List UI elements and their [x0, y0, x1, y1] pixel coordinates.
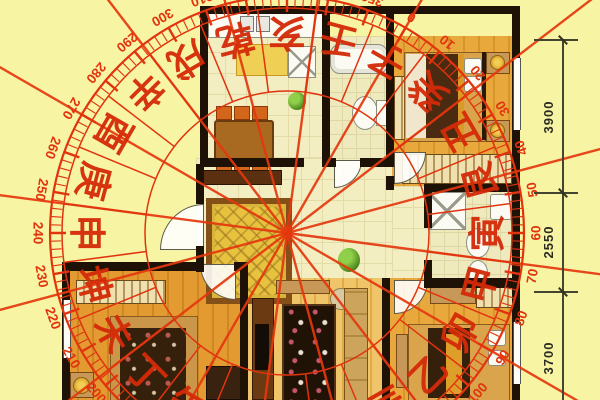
dimension-label: 3700 — [541, 330, 557, 386]
dining-chair — [234, 106, 250, 120]
tv — [255, 324, 269, 370]
bed-blanket — [426, 54, 458, 138]
table-lamp — [490, 55, 505, 70]
wall — [360, 158, 394, 167]
degree-tick — [96, 94, 104, 100]
wall — [196, 164, 204, 204]
dimension-tick — [534, 39, 578, 41]
degree-tick — [58, 176, 68, 178]
sofa — [344, 288, 368, 400]
degree-tick — [148, 42, 154, 50]
bed-throw — [446, 334, 462, 394]
window — [513, 58, 521, 130]
degree-tick — [155, 37, 161, 45]
degree-label: 270 — [59, 95, 83, 122]
degree-tick — [134, 51, 145, 64]
degree-tick — [129, 58, 136, 65]
table-lamp — [490, 123, 505, 138]
degree-tick — [53, 192, 70, 195]
console-table — [276, 280, 330, 294]
degree-label: 240 — [31, 222, 46, 245]
sector-divider — [64, 204, 146, 215]
wall — [200, 6, 518, 14]
degree-label: 230 — [32, 264, 51, 289]
wall — [424, 186, 432, 228]
dining-chair — [252, 106, 268, 120]
degree-tick — [101, 88, 109, 94]
dimension-tick — [534, 192, 578, 194]
kitchen-island — [236, 44, 288, 76]
degree-tick — [81, 114, 96, 123]
pillow — [488, 330, 506, 346]
bench — [396, 334, 408, 388]
console-shelf — [196, 170, 282, 185]
degree-tick — [184, 21, 188, 30]
degree-tick — [142, 47, 148, 55]
degree-tick — [117, 69, 124, 76]
degree-label: 300 — [149, 5, 176, 29]
toilet — [352, 96, 378, 130]
degree-tick — [162, 33, 167, 41]
degree-tick — [191, 17, 195, 26]
wall — [382, 278, 390, 400]
mountain-character: 酉 — [85, 106, 142, 160]
wall — [386, 14, 394, 158]
wall — [426, 278, 516, 286]
dining-chair — [216, 106, 232, 120]
wardrobe — [76, 280, 166, 304]
degree-label: 260 — [42, 135, 64, 161]
degree-label: 250 — [32, 177, 51, 202]
degree-tick — [87, 108, 95, 113]
window — [513, 322, 521, 384]
wall — [200, 6, 208, 166]
sector-divider — [79, 147, 156, 179]
degree-tick — [105, 80, 118, 91]
living-rug — [282, 304, 336, 400]
dimension-label: 3900 — [541, 89, 557, 145]
wall — [62, 262, 200, 271]
mountain-character: 申 — [65, 215, 109, 252]
stove-burner — [240, 16, 254, 32]
degree-label: 290 — [113, 29, 140, 55]
dimension-tick — [534, 291, 578, 293]
degree-label: 70 — [524, 268, 541, 285]
kitchen-sink — [288, 46, 316, 78]
wall — [322, 14, 330, 164]
toilet — [466, 228, 490, 258]
degree-tick — [68, 145, 77, 149]
stove-burner — [256, 16, 270, 32]
mountain-character: 辛 — [117, 63, 174, 120]
pillow — [488, 350, 506, 366]
degree-tick — [372, 14, 376, 23]
sector-divider — [150, 54, 201, 120]
degree-label: 220 — [42, 305, 64, 331]
degree-tick — [52, 208, 62, 209]
degree-tick — [53, 200, 63, 201]
degree-tick — [176, 25, 181, 34]
pillow — [464, 76, 482, 92]
wall — [424, 184, 520, 192]
washing-machine — [490, 194, 512, 220]
bed-sheet — [406, 54, 426, 138]
wall — [322, 158, 336, 167]
degree-tick — [52, 217, 62, 218]
window — [63, 300, 71, 358]
degree-tick — [63, 160, 73, 163]
degree-tick — [112, 75, 119, 82]
wall — [386, 176, 394, 190]
bed-blanket — [120, 328, 186, 400]
sector-divider — [108, 96, 174, 147]
dresser — [206, 366, 242, 400]
degree-tick — [56, 184, 66, 186]
pillow — [464, 58, 482, 74]
dining-table — [214, 120, 274, 160]
mountain-character: 庚 — [68, 158, 120, 205]
degree-tick — [123, 63, 130, 70]
degree-label: 50 — [524, 181, 541, 198]
degree-tick — [79, 122, 88, 127]
entry-door-arc — [160, 204, 204, 250]
degree-tick — [168, 27, 177, 42]
degree-tick — [52, 249, 62, 250]
dimension-line — [562, 40, 564, 400]
degree-tick — [52, 257, 62, 258]
wall — [200, 158, 304, 167]
degree-tick — [63, 152, 79, 158]
degree-tick — [379, 17, 383, 26]
shower — [428, 192, 466, 230]
degree-tick — [75, 130, 84, 134]
feng-shui-floorplan: 0102030405060708090100110120130140150160… — [0, 0, 600, 400]
degree-label: 280 — [83, 59, 109, 86]
potted-plant — [338, 248, 360, 272]
potted-plant — [288, 92, 306, 110]
table-lamp — [73, 377, 90, 394]
degree-tick — [71, 137, 80, 141]
wall — [240, 262, 248, 400]
bathtub — [330, 44, 388, 74]
sector-divider — [64, 252, 146, 263]
degree-tick — [91, 101, 99, 107]
dimension-label: 2550 — [541, 214, 557, 270]
degree-tick — [60, 168, 70, 171]
